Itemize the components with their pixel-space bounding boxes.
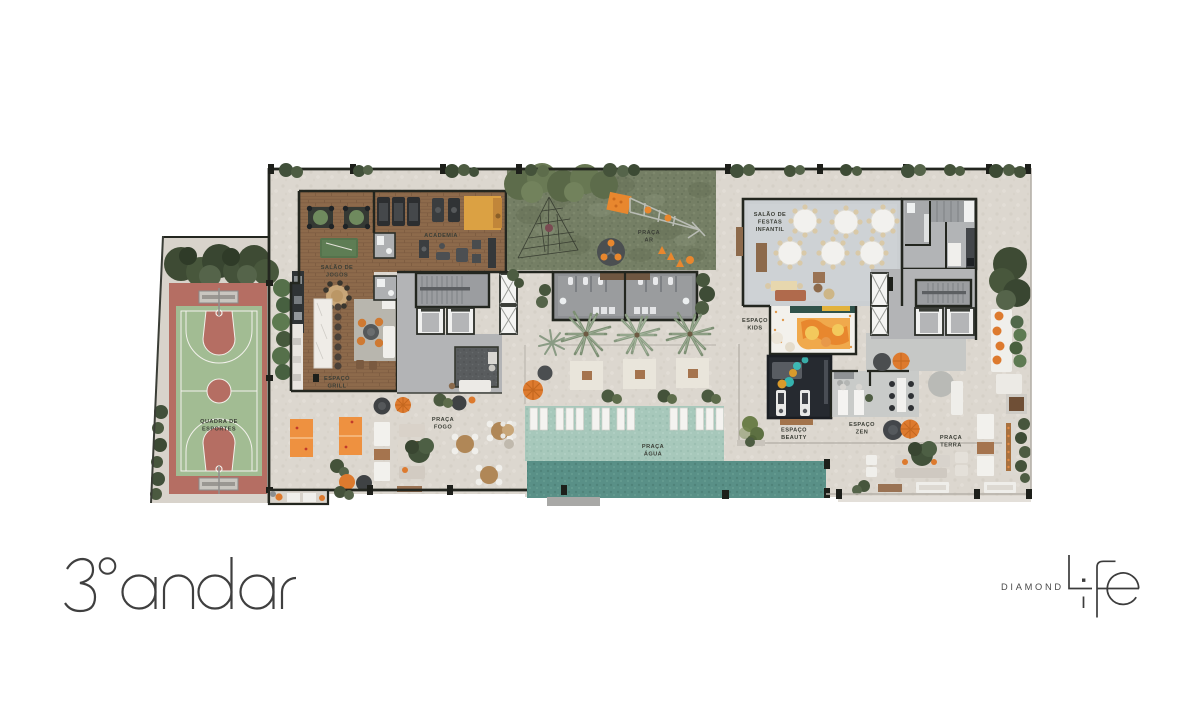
svg-text:INFANTIL: INFANTIL: [756, 227, 785, 233]
svg-text:ESPORTES: ESPORTES: [202, 427, 236, 433]
svg-text:AR: AR: [645, 238, 654, 244]
svg-text:PRAÇA: PRAÇA: [432, 417, 454, 423]
svg-text:QUADRA DE: QUADRA DE: [200, 419, 238, 425]
svg-text:TERRA: TERRA: [940, 443, 962, 449]
svg-text:DIAMOND: DIAMOND: [1001, 582, 1064, 592]
svg-text:PRAÇA: PRAÇA: [642, 444, 664, 450]
svg-text:JOGOS: JOGOS: [326, 273, 348, 279]
svg-text:ESPAÇO: ESPAÇO: [324, 376, 350, 382]
svg-text:FOGO: FOGO: [434, 425, 452, 431]
svg-text:PRAÇA: PRAÇA: [638, 230, 660, 236]
svg-text:GRILL: GRILL: [327, 384, 346, 390]
svg-text:KIDS: KIDS: [747, 326, 762, 332]
svg-text:ÁGUA: ÁGUA: [644, 451, 662, 458]
svg-text:BEAUTY: BEAUTY: [781, 435, 807, 441]
svg-text:FESTAS: FESTAS: [758, 220, 782, 226]
svg-text:ESPAÇO: ESPAÇO: [781, 428, 807, 434]
svg-text:SALÃO DE: SALÃO DE: [754, 211, 787, 218]
svg-text:ZEN: ZEN: [856, 430, 869, 436]
svg-text:ACADEMIA: ACADEMIA: [424, 233, 458, 239]
svg-text:SALÃO DE: SALÃO DE: [321, 264, 354, 271]
svg-text:ESPAÇO: ESPAÇO: [742, 318, 768, 324]
svg-text:PRAÇA: PRAÇA: [940, 435, 962, 441]
svg-text:ESPAÇO: ESPAÇO: [849, 422, 875, 428]
